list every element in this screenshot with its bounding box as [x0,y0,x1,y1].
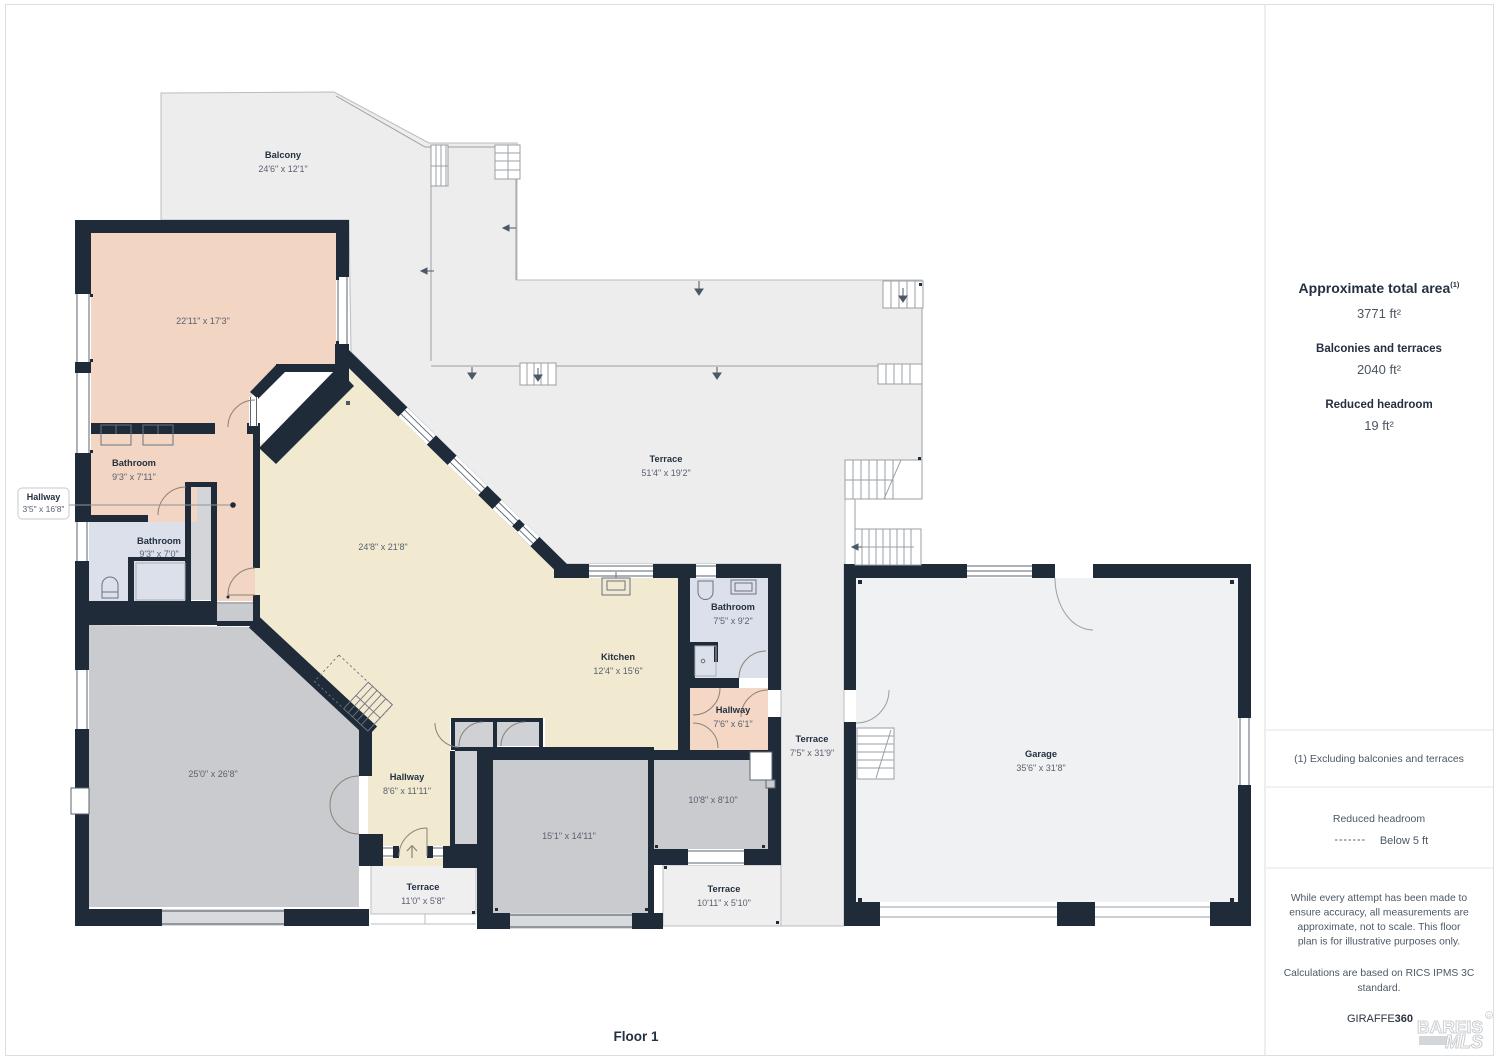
svg-text:standard.: standard. [1358,983,1401,994]
svg-text:Balconies and terraces: Balconies and terraces [1316,343,1442,355]
svg-text:10'8" x 8'10": 10'8" x 8'10" [688,795,737,805]
svg-text:ensure accuracy, all measureme: ensure accuracy, all measurements are [1289,908,1469,919]
svg-text:9'3" x 7'11": 9'3" x 7'11" [112,472,156,482]
svg-text:Bathroom: Bathroom [711,602,755,612]
svg-text:51'4" x 19'2": 51'4" x 19'2" [641,468,690,478]
svg-text:Floor 1: Floor 1 [613,1029,658,1044]
svg-text:Below 5 ft: Below 5 ft [1380,835,1428,847]
svg-text:35'6" x 31'8": 35'6" x 31'8" [1016,763,1065,773]
svg-text:Terrace: Terrace [650,454,683,464]
svg-text:12'4" x 15'6": 12'4" x 15'6" [593,666,642,676]
svg-text:Calculations are based on RICS: Calculations are based on RICS IPMS 3C [1284,968,1475,979]
svg-text:plan is for illustrative purpo: plan is for illustrative purposes only. [1298,937,1460,948]
svg-text:24'6" x 12'1": 24'6" x 12'1" [258,164,307,174]
svg-text:GIRAFFE360: GIRAFFE360 [1347,1013,1413,1025]
svg-text:7'5" x 9'2": 7'5" x 9'2" [713,616,752,626]
svg-text:Reduced headroom: Reduced headroom [1325,399,1432,411]
svg-text:8'6" x 11'11": 8'6" x 11'11" [383,786,431,796]
svg-text:Hallway: Hallway [390,772,425,782]
svg-text:Garage: Garage [1025,749,1057,759]
svg-text:Balcony: Balcony [265,150,302,160]
svg-text:Reduced headroom: Reduced headroom [1333,813,1425,825]
svg-text:3'5" x 16'8": 3'5" x 16'8" [23,504,65,514]
svg-text:7'5" x 31'9": 7'5" x 31'9" [790,748,834,758]
svg-text:22'11" x 17'3": 22'11" x 17'3" [176,316,230,326]
svg-text:3771 ft²: 3771 ft² [1357,306,1402,321]
svg-text:Hallway: Hallway [27,492,61,502]
svg-text:Terrace: Terrace [796,734,829,744]
svg-text:Bathroom: Bathroom [137,536,181,546]
svg-text:(1) Excluding balconies and te: (1) Excluding balconies and terraces [1294,753,1464,765]
svg-text:Terrace: Terrace [708,884,741,894]
svg-text:Terrace: Terrace [407,882,440,892]
svg-text:Approximate total area(1): Approximate total area(1) [1299,280,1460,296]
svg-text:While every attempt has been m: While every attempt has been made to [1291,893,1468,904]
svg-text:approximate, not to scale. Thi: approximate, not to scale. This floor [1298,922,1461,933]
svg-text:15'1" x 14'11": 15'1" x 14'11" [542,831,596,841]
svg-text:2040 ft²: 2040 ft² [1357,362,1402,377]
svg-text:25'0" x 26'8": 25'0" x 26'8" [188,769,237,779]
svg-text:19 ft²: 19 ft² [1364,418,1394,433]
svg-text:11'0" x 5'8": 11'0" x 5'8" [401,896,445,906]
svg-text:10'11" x 5'10": 10'11" x 5'10" [697,898,751,908]
svg-text:Kitchen: Kitchen [601,652,635,662]
svg-text:7'6" x 6'1": 7'6" x 6'1" [713,719,752,729]
svg-text:Bathroom: Bathroom [112,458,156,468]
svg-text:9'3" x 7'0": 9'3" x 7'0" [139,549,178,559]
svg-text:R: R [1487,1014,1491,1020]
svg-text:24'8" x 21'8": 24'8" x 21'8" [358,542,407,552]
svg-text:Hallway: Hallway [716,705,751,715]
svg-text:MLS: MLS [1445,1032,1483,1052]
